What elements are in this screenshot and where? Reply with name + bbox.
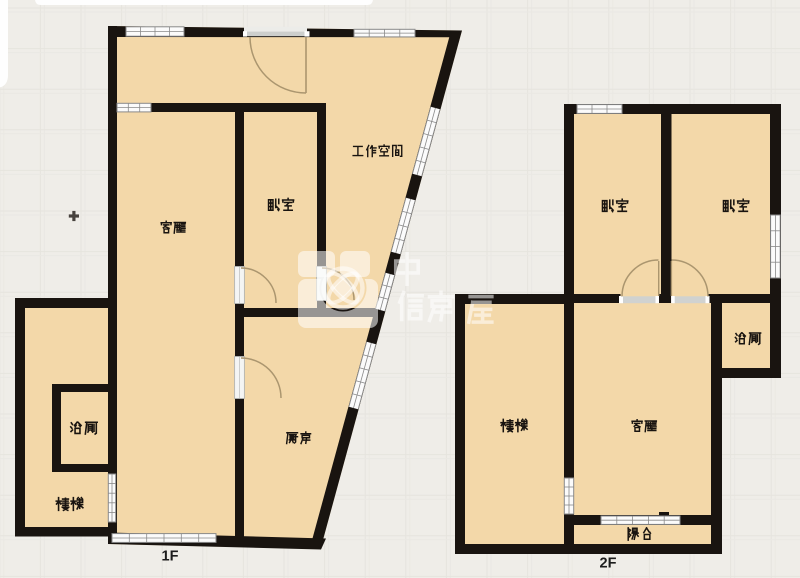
- svg-text:2F: 2F: [600, 556, 617, 572]
- svg-text:1F: 1F: [162, 549, 179, 565]
